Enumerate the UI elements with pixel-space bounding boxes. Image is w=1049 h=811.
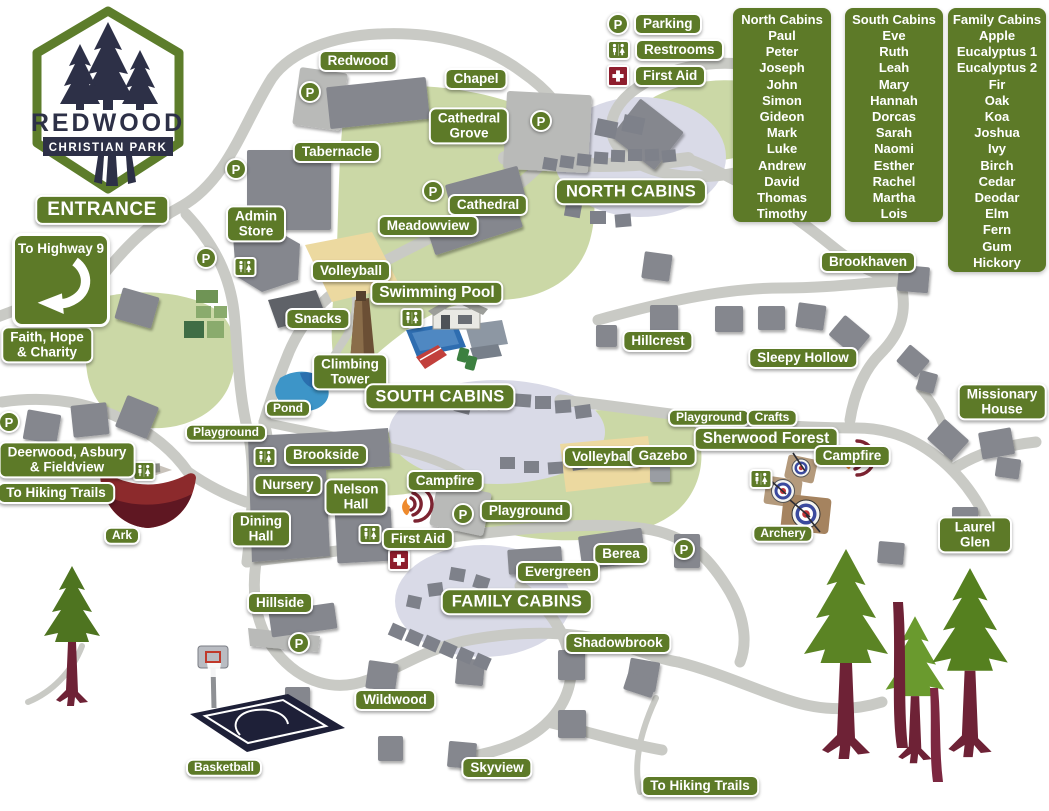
logo-badge: REDWOOD CHRISTIAN PARK: [28, 6, 188, 196]
parking-icon: P: [607, 13, 629, 35]
map-label-tabernacle: Tabernacle: [293, 141, 381, 163]
basketball-court-shape: [190, 646, 345, 752]
cabin-name: Fir: [950, 77, 1044, 93]
curved-arrow-icon: [28, 256, 94, 314]
first-aid-marker: [388, 549, 410, 571]
map-label-cathedral-grove: Cathedral Grove: [429, 107, 509, 144]
map-label-campfire: Campfire: [814, 445, 891, 467]
cabin-names: AppleEucalyptus 1Eucalyptus 2FirOakKoaJo…: [950, 28, 1044, 271]
parking-marker: P: [530, 110, 552, 132]
cabin-name: Birch: [950, 158, 1044, 174]
restrooms-marker: [254, 447, 277, 467]
cabin-name: Lois: [847, 206, 941, 222]
parking-marker: P: [195, 247, 217, 269]
parking-marker: P: [225, 158, 247, 180]
cabin-name: Martha: [847, 190, 941, 206]
map-label-family-cabins: FAMILY CABINS: [441, 588, 593, 615]
parking-marker: P: [452, 503, 474, 525]
cabin-name: Sarah: [847, 125, 941, 141]
cabin-name: Esther: [847, 158, 941, 174]
cabin-name: Eve: [847, 28, 941, 44]
map-label-missionary-house: Missionary House: [958, 383, 1047, 420]
parking-marker: P: [299, 81, 321, 103]
map-label-brookside: Brookside: [284, 444, 368, 466]
legend-parking-label: Parking: [634, 13, 702, 35]
cabin-name: Thomas: [735, 190, 829, 206]
map-label-hillcrest: Hillcrest: [622, 330, 693, 352]
legend-restrooms-label: Restrooms: [635, 39, 724, 61]
cabin-name: Dorcas: [847, 109, 941, 125]
map-label-shadowbrook: Shadowbrook: [564, 632, 671, 654]
cabin-name: Ruth: [847, 44, 941, 60]
cabin-list-north-cabins: North Cabins PaulPeterJosephJohnSimonGid…: [733, 8, 831, 222]
restrooms-marker: [359, 524, 382, 544]
park-map: RedwoodChapelCathedral GroveTabernacleNO…: [0, 0, 1049, 811]
map-label-playground: Playground: [668, 409, 750, 427]
park-logo: REDWOOD CHRISTIAN PARK: [28, 6, 188, 201]
map-label-basketball: Basketball: [186, 759, 262, 777]
cabin-name: David: [735, 174, 829, 190]
map-label-cathedral: Cathedral: [448, 194, 528, 216]
restrooms-marker: [401, 308, 424, 328]
map-label-brookhaven: Brookhaven: [820, 251, 916, 273]
map-label-redwood: Redwood: [319, 50, 398, 72]
cabin-list-title: Family Cabins: [950, 12, 1044, 28]
cabin-name: Rachel: [847, 174, 941, 190]
map-label-playground: Playground: [185, 424, 267, 442]
map-label-faith-hope-charity: Faith, Hope & Charity: [1, 326, 93, 363]
legend-row-restrooms: Restrooms: [607, 39, 724, 61]
cabin-list-title: North Cabins: [735, 12, 829, 28]
map-label-evergreen: Evergreen: [516, 561, 600, 583]
cabin-name: Koa: [950, 109, 1044, 125]
map-label-berea: Berea: [593, 543, 649, 565]
map-label-south-cabins: SOUTH CABINS: [364, 383, 515, 410]
logo-subtitle: CHRISTIAN PARK: [49, 142, 168, 154]
cabin-name: Oak: [950, 93, 1044, 109]
legend-row-parking: P Parking: [607, 13, 724, 35]
cabin-name: Paul: [735, 28, 829, 44]
map-label-first-aid: First Aid: [382, 528, 454, 550]
parking-marker: P: [422, 180, 444, 202]
parking-marker: P: [288, 632, 310, 654]
map-label-sleepy-hollow: Sleepy Hollow: [748, 347, 858, 369]
map-label-meadowview: Meadowview: [378, 215, 479, 237]
restrooms-marker: [234, 257, 257, 277]
map-label-nelson-hall: Nelson Hall: [324, 478, 387, 515]
cabin-name: John: [735, 77, 829, 93]
map-label-swimming-pool: Swimming Pool: [370, 281, 503, 305]
map-label-ark: Ark: [104, 527, 140, 545]
map-label-to-hiking-trails: To Hiking Trails: [0, 482, 115, 504]
map-label-skyview: Skyview: [461, 757, 532, 779]
cabin-name: Joshua: [950, 125, 1044, 141]
cabin-list-title: South Cabins: [847, 12, 941, 28]
map-label-dining-hall: Dining Hall: [231, 510, 291, 547]
cabin-name: Cedar: [950, 174, 1044, 190]
map-label-volleyball: Volleyball: [311, 260, 391, 282]
map-label-wildwood: Wildwood: [354, 689, 436, 711]
map-label-crafts: Crafts: [747, 409, 798, 427]
cabin-name: Mark: [735, 125, 829, 141]
map-label-campfire: Campfire: [407, 470, 484, 492]
map-label-pond: Pond: [265, 400, 311, 418]
map-label-deerwood-asbury-fieldview: Deerwood, Asbury & Fieldview: [0, 441, 135, 478]
cabin-list-family-cabins: Family Cabins AppleEucalyptus 1Eucalyptu…: [948, 8, 1046, 272]
map-label-hillside: Hillside: [247, 592, 313, 614]
cabin-names: PaulPeterJosephJohnSimonGideonMarkLukeAn…: [735, 28, 829, 222]
cabin-name: Ivy: [950, 141, 1044, 157]
cabin-name: Naomi: [847, 141, 941, 157]
cabin-name: Leah: [847, 60, 941, 76]
map-label-gazebo: Gazebo: [630, 445, 697, 467]
cabin-name: Elm: [950, 206, 1044, 222]
map-label-admin-store: Admin Store: [226, 205, 286, 242]
restrooms-marker: [133, 461, 156, 481]
cabin-name: Hannah: [847, 93, 941, 109]
cabin-name: Mary: [847, 77, 941, 93]
cabin-name: Gum: [950, 239, 1044, 255]
cabin-names: EveRuthLeahMaryHannahDorcasSarahNaomiEst…: [847, 28, 941, 222]
cabin-name: Hickory: [950, 255, 1044, 271]
cabin-name: Joseph: [735, 60, 829, 76]
cabin-name: Timothy: [735, 206, 829, 222]
cabin-name: Eucalyptus 2: [950, 60, 1044, 76]
cabin-name: Fern: [950, 222, 1044, 238]
cabin-list-south-cabins: South Cabins EveRuthLeahMaryHannahDorcas…: [845, 8, 943, 222]
highway-sign: To Highway 9: [12, 233, 110, 327]
restrooms-icon: [607, 40, 630, 60]
map-label-north-cabins: NORTH CABINS: [555, 178, 707, 205]
cabin-name: Andrew: [735, 158, 829, 174]
legend-row-first-aid: First Aid: [607, 65, 724, 87]
parking-marker: P: [673, 538, 695, 560]
map-label-playground: Playground: [480, 500, 572, 522]
legend-first-aid-label: First Aid: [634, 65, 706, 87]
map-label-laurel-glen: Laurel Glen: [938, 516, 1012, 553]
cabin-name: Simon: [735, 93, 829, 109]
cabin-name: Deodar: [950, 190, 1044, 206]
cabin-name: Luke: [735, 141, 829, 157]
first-aid-icon: [607, 65, 629, 87]
cabin-name: Eucalyptus 1: [950, 44, 1044, 60]
cabin-name: Peter: [735, 44, 829, 60]
map-label-snacks: Snacks: [285, 308, 350, 330]
map-label-archery: Archery: [752, 525, 813, 543]
cabin-name: Apple: [950, 28, 1044, 44]
map-label-chapel: Chapel: [444, 68, 507, 90]
cabin-name: Gideon: [735, 109, 829, 125]
highway-sign-label: To Highway 9: [15, 241, 107, 256]
restrooms-marker: [750, 469, 773, 489]
map-label-to-hiking-trails: To Hiking Trails: [641, 775, 759, 797]
map-legend: P Parking Restrooms First Aid: [607, 13, 724, 91]
map-label-nursery: Nursery: [253, 474, 322, 496]
logo-trunks-icon: [94, 156, 136, 186]
logo-title: REDWOOD: [31, 109, 185, 137]
